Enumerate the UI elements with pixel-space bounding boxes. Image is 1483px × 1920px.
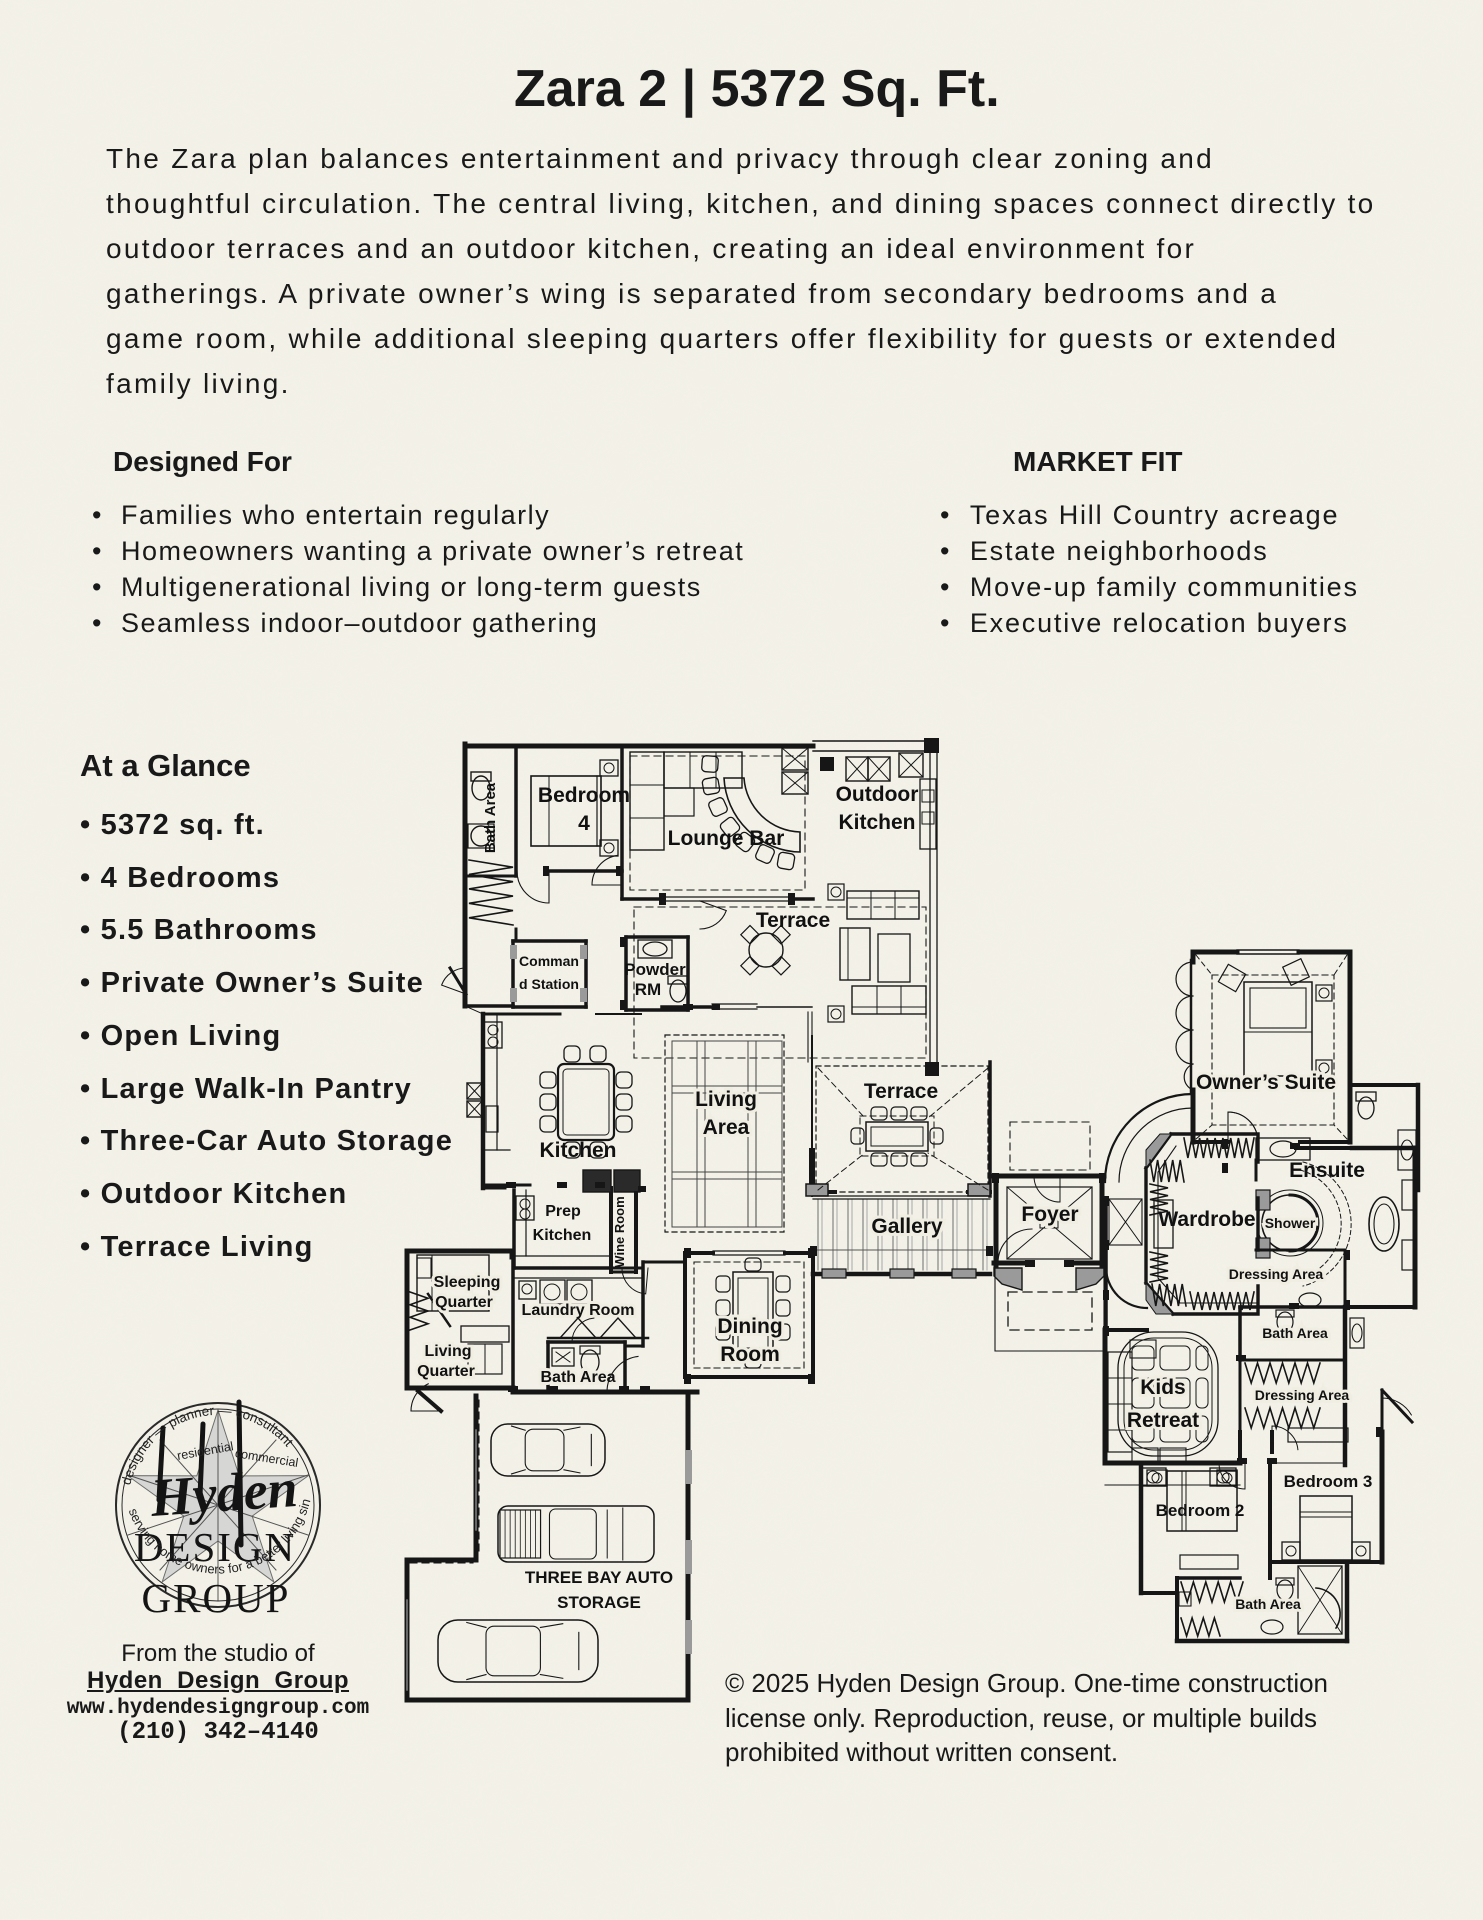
svg-text:Bath Area: Bath Area [1235,1596,1301,1612]
svg-text:Owner’s Suite: Owner’s Suite [1196,1071,1336,1094]
svg-text:Quarter: Quarter [435,1294,493,1311]
svg-text:Dressing Area: Dressing Area [1229,1266,1324,1282]
svg-text:THREE BAY AUTO: THREE BAY AUTO [525,1568,673,1587]
svg-text:Kitchen: Kitchen [533,1227,592,1244]
svg-text:Kitchen: Kitchen [539,1139,616,1162]
svg-text:GROUP: GROUP [142,1575,291,1621]
svg-text:Wine Room: Wine Room [612,1196,627,1267]
svg-text:Hyden: Hyden [148,1458,300,1528]
svg-text:Ensuite: Ensuite [1289,1159,1365,1182]
svg-text:d Station: d Station [519,976,579,992]
svg-text:Comman: Comman [519,953,579,969]
svg-text:Shower: Shower [1265,1215,1316,1231]
svg-text:Kitchen: Kitchen [838,811,915,834]
svg-text:Dining: Dining [717,1315,782,1338]
svg-text:Bath Area: Bath Area [1262,1325,1328,1341]
svg-text:Kids: Kids [1140,1376,1186,1399]
svg-text:Outdoor: Outdoor [836,783,919,806]
svg-text:Bedroom 2: Bedroom 2 [1156,1501,1245,1520]
svg-text:Bedroom: Bedroom [538,784,630,807]
svg-text:serving home owners for a bett: serving home owners for a better living … [0,0,313,1577]
svg-text:RM: RM [635,980,661,999]
svg-text:Living: Living [695,1088,757,1111]
svg-text:Area: Area [703,1116,750,1139]
svg-text:Bedroom 3: Bedroom 3 [1284,1472,1373,1491]
svg-text:STORAGE: STORAGE [557,1593,641,1612]
svg-text:Terrace: Terrace [864,1080,938,1103]
svg-text:Foyer: Foyer [1021,1203,1078,1226]
svg-text:Bath Area: Bath Area [541,1369,616,1386]
svg-text:Lounge Bar: Lounge Bar [668,827,785,850]
svg-text:Sleeping: Sleeping [434,1274,501,1291]
svg-text:Retreat: Retreat [1127,1409,1199,1432]
svg-text:Gallery: Gallery [871,1215,943,1238]
svg-text:Living: Living [424,1343,471,1360]
svg-text:Quarter: Quarter [417,1363,475,1380]
svg-text:Laundry Room: Laundry Room [522,1302,635,1319]
svg-text:Bath Area: Bath Area [482,782,499,853]
svg-text:Dressing Area: Dressing Area [1255,1387,1350,1403]
svg-text:Prep: Prep [545,1203,581,1220]
svg-text:Terrace: Terrace [756,909,830,932]
svg-text:4: 4 [578,812,590,835]
svg-text:Room: Room [720,1343,780,1366]
svg-text:Wardrobe: Wardrobe [1158,1208,1255,1231]
